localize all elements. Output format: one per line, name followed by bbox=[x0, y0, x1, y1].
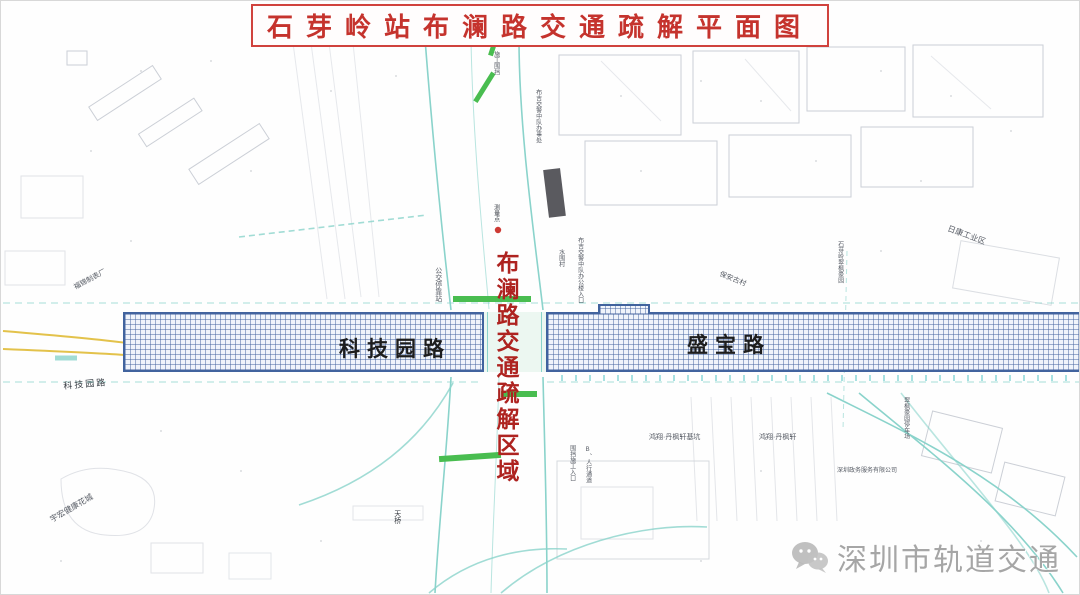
road-band-notch bbox=[598, 304, 650, 314]
map-label: 布吉交警中队办事处 bbox=[534, 89, 541, 143]
map-label: 翠枫豪园停车场 bbox=[902, 397, 909, 439]
map-label: 公交停靠站 bbox=[434, 267, 442, 302]
road-band-shengbao bbox=[546, 312, 1080, 372]
page-title: 石芽岭站布澜路交通疏解平面图 bbox=[267, 12, 813, 42]
map-label: 围挡施工入口 bbox=[568, 445, 575, 481]
road-edge-line bbox=[541, 312, 542, 372]
road-label-kejiyuan: 科技园路 bbox=[339, 333, 451, 363]
watermark-brand: 深圳市轨道交通 bbox=[837, 535, 1061, 579]
traffic-plan-canvas: 石芽岭站布澜路交通疏解平面图 科技园路 盛宝路 布澜路交通疏解区域 福锦制表厂 … bbox=[0, 0, 1080, 595]
wechat-icon bbox=[791, 540, 829, 574]
map-label: 天桥 bbox=[393, 510, 401, 524]
watermark: 深圳市轨道交通 bbox=[791, 535, 1061, 579]
map-label: 鸿翔·丹枫轩基坑 bbox=[649, 434, 700, 442]
survey-point-marker bbox=[495, 227, 501, 233]
map-label: 测量点 bbox=[492, 204, 499, 222]
map-label: 石芽岭翠枫豪园 bbox=[836, 241, 843, 283]
map-label: 鸿翔·丹枫轩 bbox=[759, 434, 796, 442]
road-label-shengbao: 盛宝路 bbox=[687, 329, 771, 359]
title-box: 石芽岭站布澜路交通疏解平面图 bbox=[251, 4, 829, 47]
map-label: 布吉交警中队办公楼入口 bbox=[576, 237, 583, 303]
map-label: 水围村 bbox=[557, 249, 564, 267]
map-label: 施工围挡 bbox=[492, 51, 499, 75]
zone-label: 布澜路交通疏解区域 bbox=[488, 251, 522, 485]
map-label: 深圳政务服务有限公司 bbox=[837, 468, 897, 475]
map-label: B、人行通道 bbox=[584, 447, 591, 483]
